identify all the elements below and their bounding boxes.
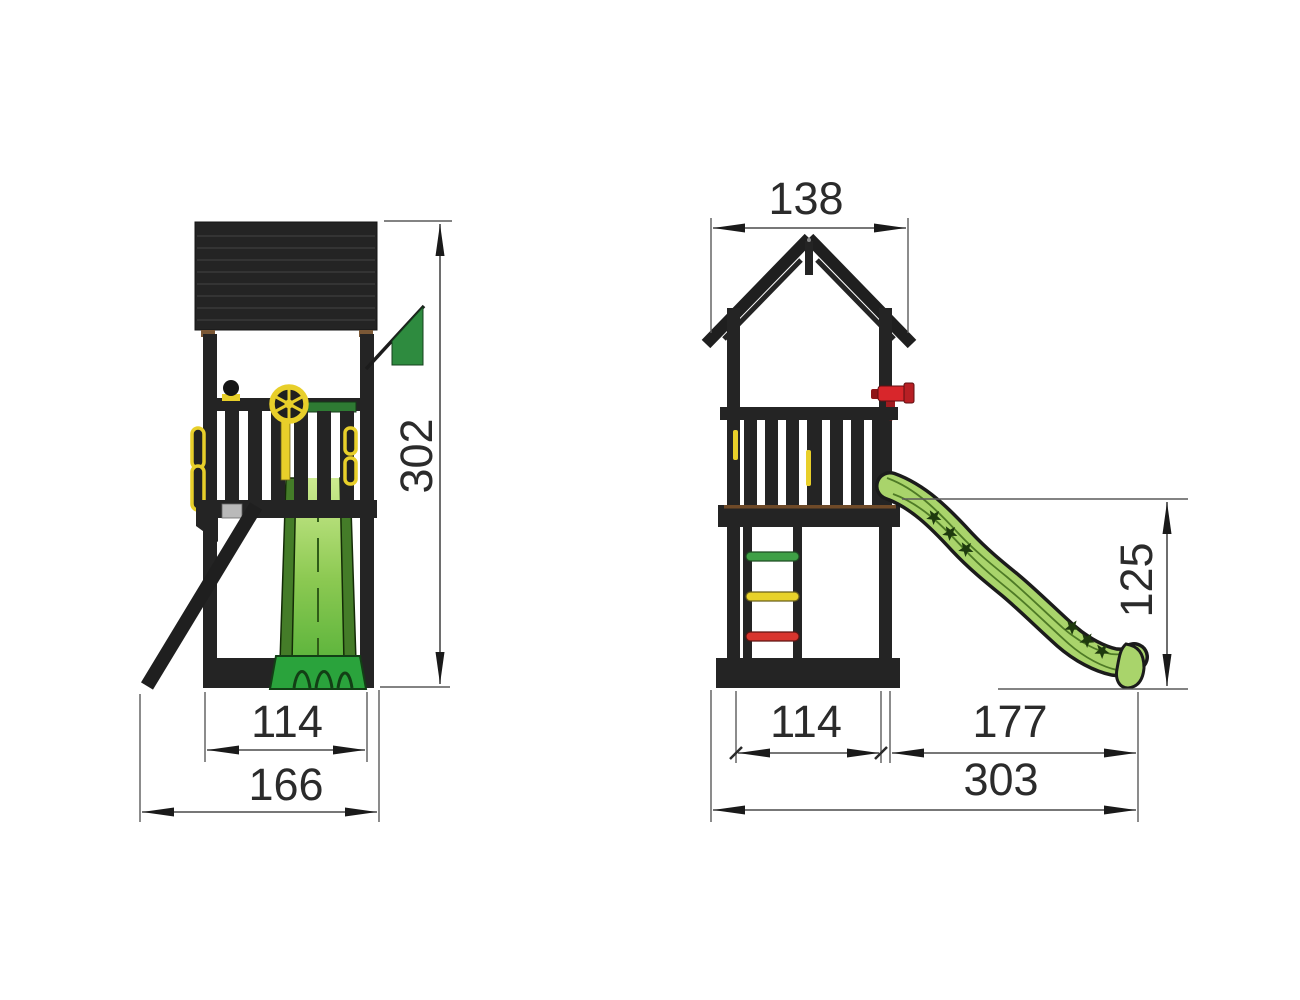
telescope-hood [904,383,914,403]
balcony-slats-front [744,420,879,505]
gray-block [222,504,242,518]
rafter-left [706,238,809,344]
balcony-rail-front [720,407,898,420]
dim-label-height: 302 [391,418,442,493]
flag-pennant [392,307,423,365]
ladder-rung-yellow [746,592,799,601]
dimension-slide-length-177: 177 [890,691,1136,763]
handle-icon [192,428,204,468]
base-beam-front [716,658,900,688]
wheel-hub [285,400,294,409]
dim-label-slide-length: 177 [972,696,1047,747]
ladder [743,527,802,663]
dim-label-front-platform: 114 [770,696,842,747]
floor-edge-board [724,505,896,509]
dim-label-roof: 138 [768,173,843,224]
handle-icon [345,458,356,484]
slide-profile [887,478,1144,688]
telescope-body [878,386,906,401]
dim-label-depth: 166 [248,759,323,810]
dim-label-side-platform: 114 [251,696,323,747]
ladder-rung-red [746,632,799,641]
apex-bolt [807,238,811,242]
roof-side [195,222,377,337]
dim-label-total-width: 303 [963,754,1038,805]
knob-icon [223,380,239,396]
front-view [706,238,1144,688]
drawing-svg: 302 114 166 138 125 [0,0,1300,1000]
side-view [147,222,424,689]
dimension-front-platform-114: 114 [730,691,887,763]
slide-end-lip [1116,644,1144,688]
dimension-side-platform-114: 114 [205,692,367,762]
handle-icon [345,428,356,454]
rafter-right [809,238,912,344]
platform-floor-front [718,505,900,527]
dimension-drawing-canvas: 302 114 166 138 125 [0,0,1300,1000]
latch-icon [806,450,811,486]
king-post [805,241,813,275]
ladder-rung-green [746,552,799,561]
post-front-left [727,308,740,688]
latch-icon [733,430,738,460]
wheel-stem [281,420,290,480]
slide-base [270,656,366,689]
dimension-height-302: 302 [380,221,452,687]
dim-label-slide-height: 125 [1111,542,1162,617]
